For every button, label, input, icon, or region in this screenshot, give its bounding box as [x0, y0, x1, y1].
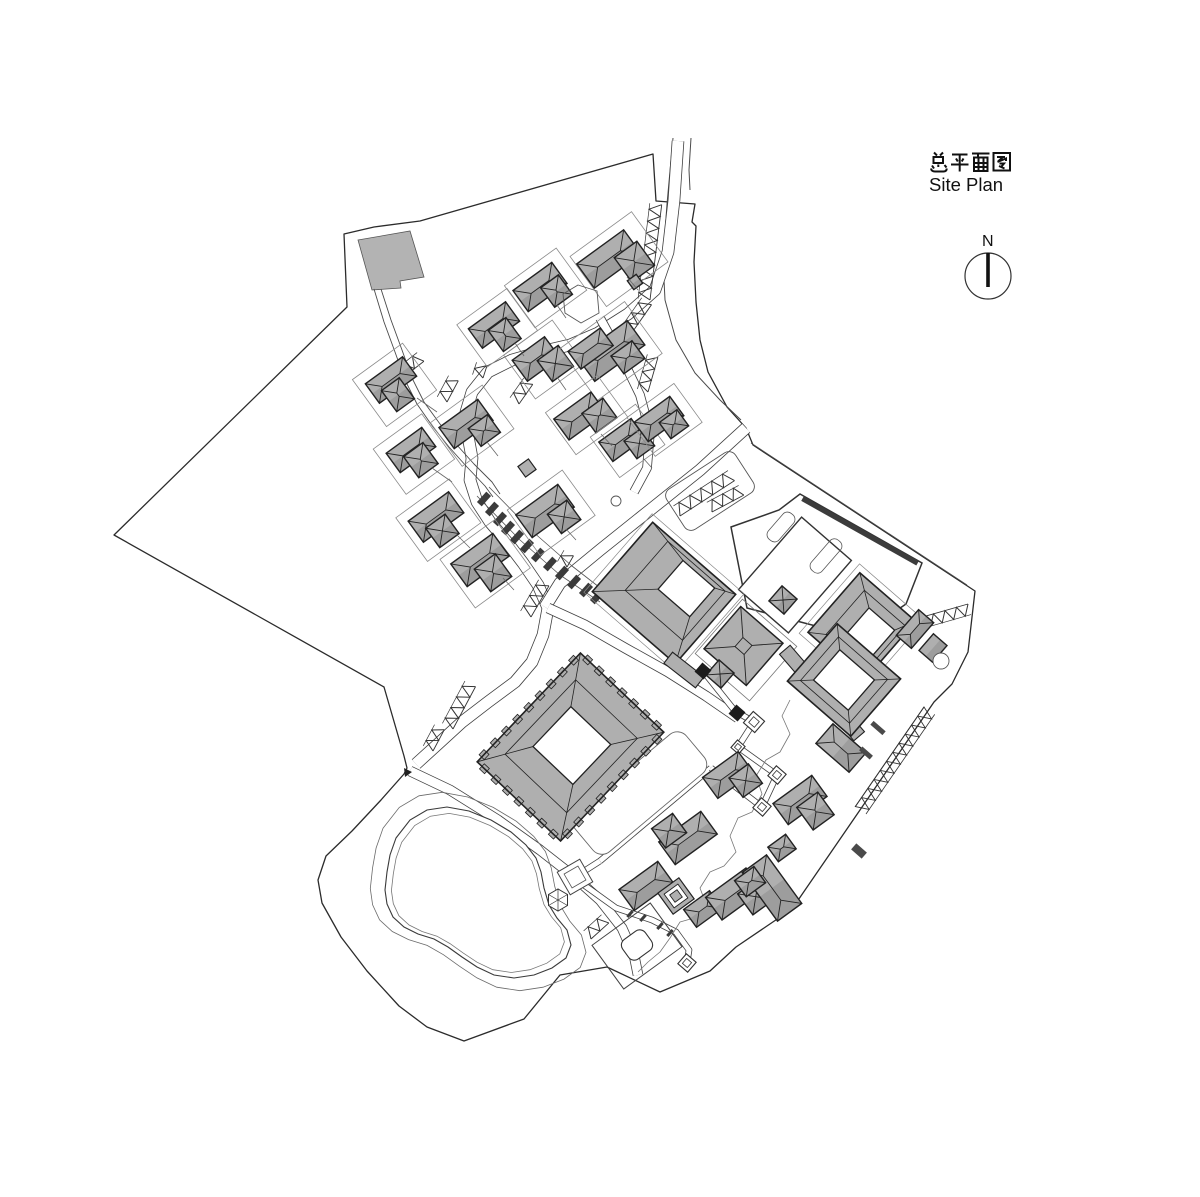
svg-text:Site Plan: Site Plan: [929, 174, 1003, 195]
svg-text:N: N: [982, 233, 994, 250]
